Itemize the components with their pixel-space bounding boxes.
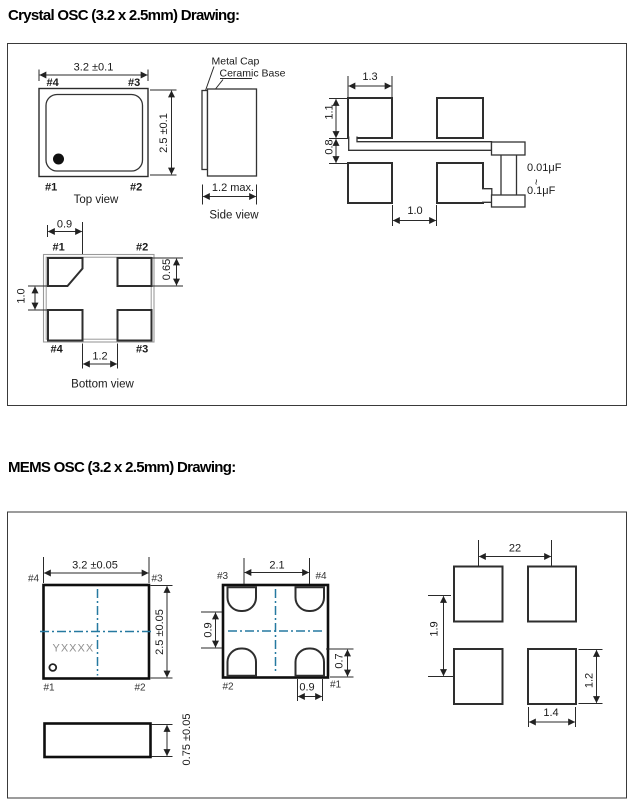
dim-height-label: 2.5 ±0.1 — [158, 113, 170, 153]
land-pad-bottom-right — [528, 649, 576, 704]
pin1-marker-circle — [49, 664, 56, 671]
capacitor-top-plate — [492, 142, 526, 155]
pad-3 — [228, 587, 257, 611]
pin-label-3: #3 — [128, 77, 140, 89]
dim-pad-width-label: 0.9 — [299, 682, 314, 694]
mems-top-view: YXXXX 3.2 ±0.05 #4 #3 2.5 ±0.05 #1 #2 — [28, 557, 173, 694]
pin-label-4: #4 — [51, 344, 64, 356]
top-view-caption: Top view — [74, 194, 119, 206]
pin-label-1: #1 — [53, 242, 65, 254]
capacitor-bottom-plate — [492, 195, 526, 207]
datasheet-page: Crystal OSC (3.2 x 2.5mm) Drawing: MEMS … — [0, 0, 636, 809]
pin-label-2: #2 — [130, 182, 142, 194]
land-pad-bottom-left — [348, 163, 392, 203]
pin-label-4: #4 — [316, 571, 328, 582]
pin1-marker-dot — [53, 154, 64, 165]
pin-label-1: #1 — [45, 182, 57, 194]
mechanical-drawings: 3.2 ±0.1 #4 #3 2.5 ±0.1 #1 #2 Top view M… — [0, 0, 636, 809]
pin-label-3: #3 — [152, 574, 164, 585]
land-pad-top-left — [454, 567, 503, 622]
dim-thickness-label: 0.75 ±0.05 — [181, 714, 193, 766]
ceramic-base-label: Ceramic Base — [220, 68, 286, 80]
capacitor-max-label: 0.1μF — [527, 185, 556, 197]
dim-height-label: 2.5 ±0.05 — [154, 609, 166, 655]
mems-bottom-view: 2.1 #3 #4 0.9 0.7 0.9 #2 #1 — [201, 558, 354, 701]
package-profile — [45, 724, 151, 758]
pad-1 — [296, 649, 325, 676]
dim-gap-vertical-label: 1.0 — [16, 288, 28, 303]
dim-pad-height-label: 0.65 — [161, 259, 173, 280]
metal-cap-label: Metal Cap — [212, 56, 260, 68]
pad-2 — [118, 258, 152, 286]
side-view-caption: Side view — [209, 210, 259, 222]
dim-width-label: 3.2 ±0.1 — [74, 62, 114, 74]
part-marking: YXXXX — [53, 643, 95, 655]
leader-line-metal-cap — [206, 67, 215, 91]
dim-pad-height-label: 1.2 — [584, 673, 596, 688]
dim-pad-width-label: 0.9 — [57, 219, 72, 231]
dim-pad-height-label: 1.1 — [324, 104, 336, 119]
dim-thickness-label: 1.2 max. — [212, 182, 254, 194]
bottom-view-caption: Bottom view — [71, 379, 134, 391]
trace-pad-extension — [482, 189, 492, 203]
pin-label-3: #3 — [136, 344, 148, 356]
dim-pitch-vertical-label: 1.9 — [429, 621, 441, 636]
pin-label-2: #2 — [136, 242, 148, 254]
pad-2 — [228, 649, 257, 676]
crystal-land-pattern: 1.3 1.1 0.8 1.0 0.01μF ~ 0.1μF — [324, 71, 562, 226]
pin-label-2: #2 — [223, 682, 235, 693]
mems-side-view: 0.75 ±0.05 — [45, 714, 194, 766]
dim-gap-horizontal-label: 1.2 — [92, 351, 107, 363]
pin-label-1: #1 — [44, 683, 56, 694]
mems-land-pattern: 22 1.9 1.2 1.4 — [428, 540, 603, 727]
pad-4 — [48, 310, 83, 341]
land-pad-top-right — [528, 567, 576, 622]
dim-pad-height-label: 0.7 — [334, 653, 346, 668]
dim-width-label: 2.1 — [269, 560, 284, 572]
land-pad-bottom-left — [454, 649, 503, 704]
land-pad-top-left — [348, 98, 392, 138]
pin-label-1: #1 — [330, 680, 342, 691]
pad-3 — [118, 310, 152, 341]
crystal-bottom-view: 0.9 #1 #2 1.0 0.65 #4 #3 1.2 Bottom view — [16, 219, 184, 391]
pin-label-3: #3 — [217, 571, 229, 582]
ceramic-base-profile — [208, 89, 257, 176]
metal-cap-profile — [202, 91, 208, 170]
dim-gap-vertical-label: 0.9 — [203, 622, 215, 637]
crystal-side-view: Metal Cap Ceramic Base 1.2 max. Side vie… — [202, 56, 286, 222]
dim-pitch-horizontal-label: 22 — [509, 543, 521, 555]
pad-4 — [296, 587, 325, 611]
pin-label-4: #4 — [47, 77, 60, 89]
pin-label-4: #4 — [28, 574, 40, 585]
land-pad-top-right — [437, 98, 483, 138]
crystal-top-view: 3.2 ±0.1 #4 #3 2.5 ±0.1 #1 #2 Top view — [39, 62, 177, 207]
dim-row-gap-label: 0.8 — [324, 139, 336, 154]
dim-pad-width-label: 1.3 — [362, 71, 377, 83]
dim-pad-width-label: 1.4 — [543, 707, 558, 719]
pin-label-2: #2 — [135, 683, 147, 694]
dim-width-label: 3.2 ±0.05 — [72, 560, 118, 572]
capacitor-min-label: 0.01μF — [527, 162, 562, 174]
dim-col-gap-label: 1.0 — [407, 205, 422, 217]
land-pad-bottom-right — [437, 163, 483, 203]
